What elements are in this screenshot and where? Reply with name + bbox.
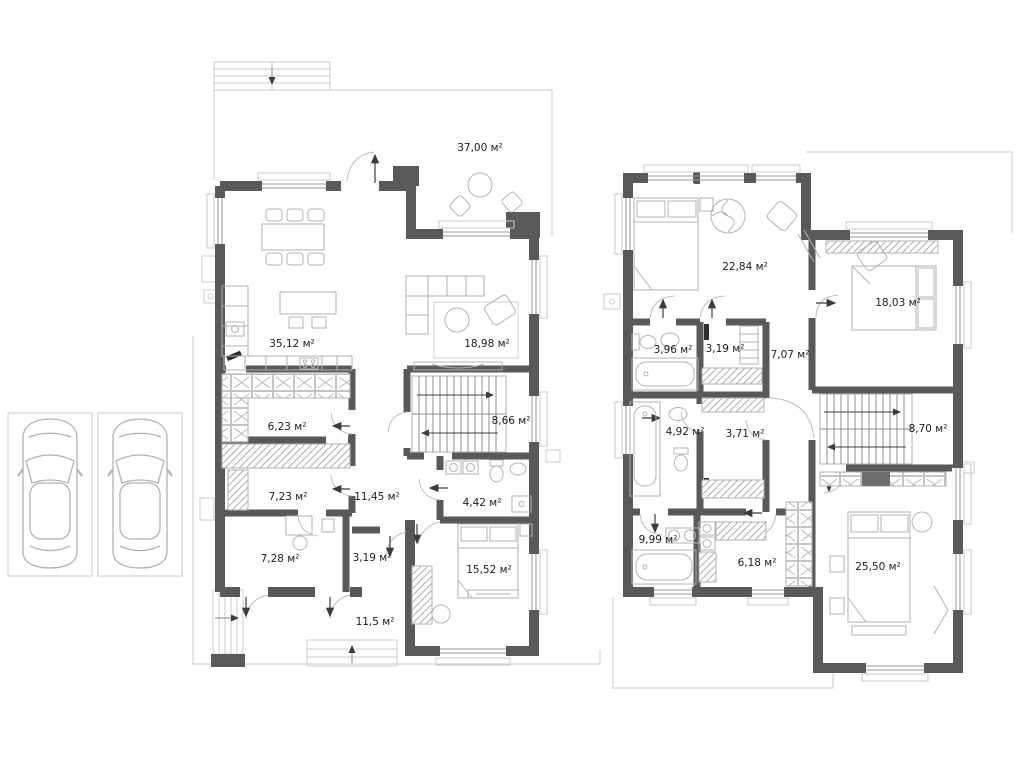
kitchen-counter-icon bbox=[222, 286, 248, 356]
room-area-label-bedroom-2: 22,84 м² bbox=[722, 261, 768, 273]
desk-icon bbox=[286, 516, 334, 550]
nightstand-icon bbox=[830, 598, 844, 614]
room-area-label-porch: 11,5 м² bbox=[356, 616, 395, 628]
armchair-icon bbox=[483, 294, 517, 326]
exterior-walls bbox=[220, 186, 534, 651]
wardrobe-icon bbox=[702, 480, 764, 498]
closet-icon bbox=[786, 502, 812, 586]
room-area-label-bedroom-3: 18,03 м² bbox=[875, 297, 921, 309]
room-area-label-office: 7,28 м² bbox=[261, 553, 300, 565]
coffee-table-icon bbox=[445, 308, 469, 332]
bed-icon bbox=[458, 524, 518, 598]
room-area-label-bathroom-1: 4,42 м² bbox=[463, 497, 502, 509]
staircase-icon bbox=[820, 394, 912, 464]
room-area-label-bathroom-2: 4,92 м² bbox=[666, 426, 705, 438]
room-area-label-terrace: 37,00 м² bbox=[457, 142, 503, 154]
nightstand-icon bbox=[830, 556, 844, 572]
car-icon bbox=[108, 419, 172, 568]
room-area-label-bedroom-1: 15,52 м² bbox=[466, 564, 512, 576]
room-area-label-wardrobe: 7,23 м² bbox=[269, 491, 308, 503]
dresser-block bbox=[862, 472, 890, 486]
room-area-label-closet: 3,19 м² bbox=[706, 343, 745, 355]
room-area-label-wc: 3,96 м² bbox=[654, 344, 693, 356]
room-area-label-stairs-1: 8,66 м² bbox=[492, 415, 531, 427]
wall-block bbox=[393, 166, 419, 186]
room-area-label-corridor-2: 6,18 м² bbox=[738, 557, 777, 569]
room-area-label-bathroom-3: 9,99 м² bbox=[639, 534, 678, 546]
wardrobe-icon bbox=[716, 522, 766, 540]
room-area-label-pantry: 6,23 м² bbox=[268, 421, 307, 433]
room-area-label-living: 18,98 м² bbox=[464, 338, 510, 350]
wardrobe-icon bbox=[702, 368, 762, 384]
room-area-label-hall-3: 3,71 м² bbox=[726, 428, 765, 440]
chair-icon bbox=[912, 512, 932, 532]
washer-icon bbox=[699, 522, 716, 582]
cabinet-row bbox=[222, 374, 350, 398]
wardrobe-icon bbox=[412, 566, 432, 624]
ceiling-fan-icon bbox=[711, 199, 745, 233]
second-floor-plan bbox=[604, 152, 1012, 688]
wardrobe-icon bbox=[826, 241, 938, 253]
floor-plan-canvas: 37,00 м² 35,12 м² 18,98 м² 6,23 м² 8,66 … bbox=[0, 0, 1024, 768]
wc-fixtures bbox=[632, 333, 698, 390]
room-area-label-kitchen: 35,12 м² bbox=[269, 338, 315, 350]
bathroom-fixtures bbox=[630, 402, 688, 496]
nightstand-icon bbox=[700, 198, 713, 211]
room-area-label-hallway: 11,45 м² bbox=[354, 491, 400, 503]
wardrobe-icon bbox=[702, 398, 764, 412]
bed-icon bbox=[634, 198, 698, 290]
window-mullion bbox=[694, 172, 700, 184]
tv-console-icon bbox=[468, 590, 518, 598]
steps-pillar bbox=[211, 654, 245, 667]
cabinet-column bbox=[222, 398, 248, 442]
shelf-icon bbox=[228, 470, 248, 510]
bed-icon bbox=[848, 512, 910, 635]
staircase-icon bbox=[412, 376, 506, 452]
wall-block bbox=[506, 212, 540, 238]
chair-icon bbox=[766, 200, 799, 232]
terrace-furniture bbox=[449, 173, 524, 217]
chair-icon bbox=[432, 605, 450, 623]
floor-plan-drawing bbox=[0, 0, 1024, 768]
room-area-label-stairs-2: 8,70 м² bbox=[909, 423, 948, 435]
sofa-icon bbox=[406, 276, 484, 334]
car-icon bbox=[18, 419, 82, 568]
room-area-label-corridor-1: 3,19 м² bbox=[353, 552, 392, 564]
room-area-label-bedroom-4: 25,50 м² bbox=[855, 561, 901, 573]
first-floor-plan bbox=[193, 62, 600, 667]
wardrobe-icon bbox=[222, 444, 350, 468]
dining-table-icon bbox=[262, 209, 324, 265]
room-area-label-hall-2: 7,07 м² bbox=[771, 349, 810, 361]
kitchen-island-icon bbox=[280, 292, 336, 328]
